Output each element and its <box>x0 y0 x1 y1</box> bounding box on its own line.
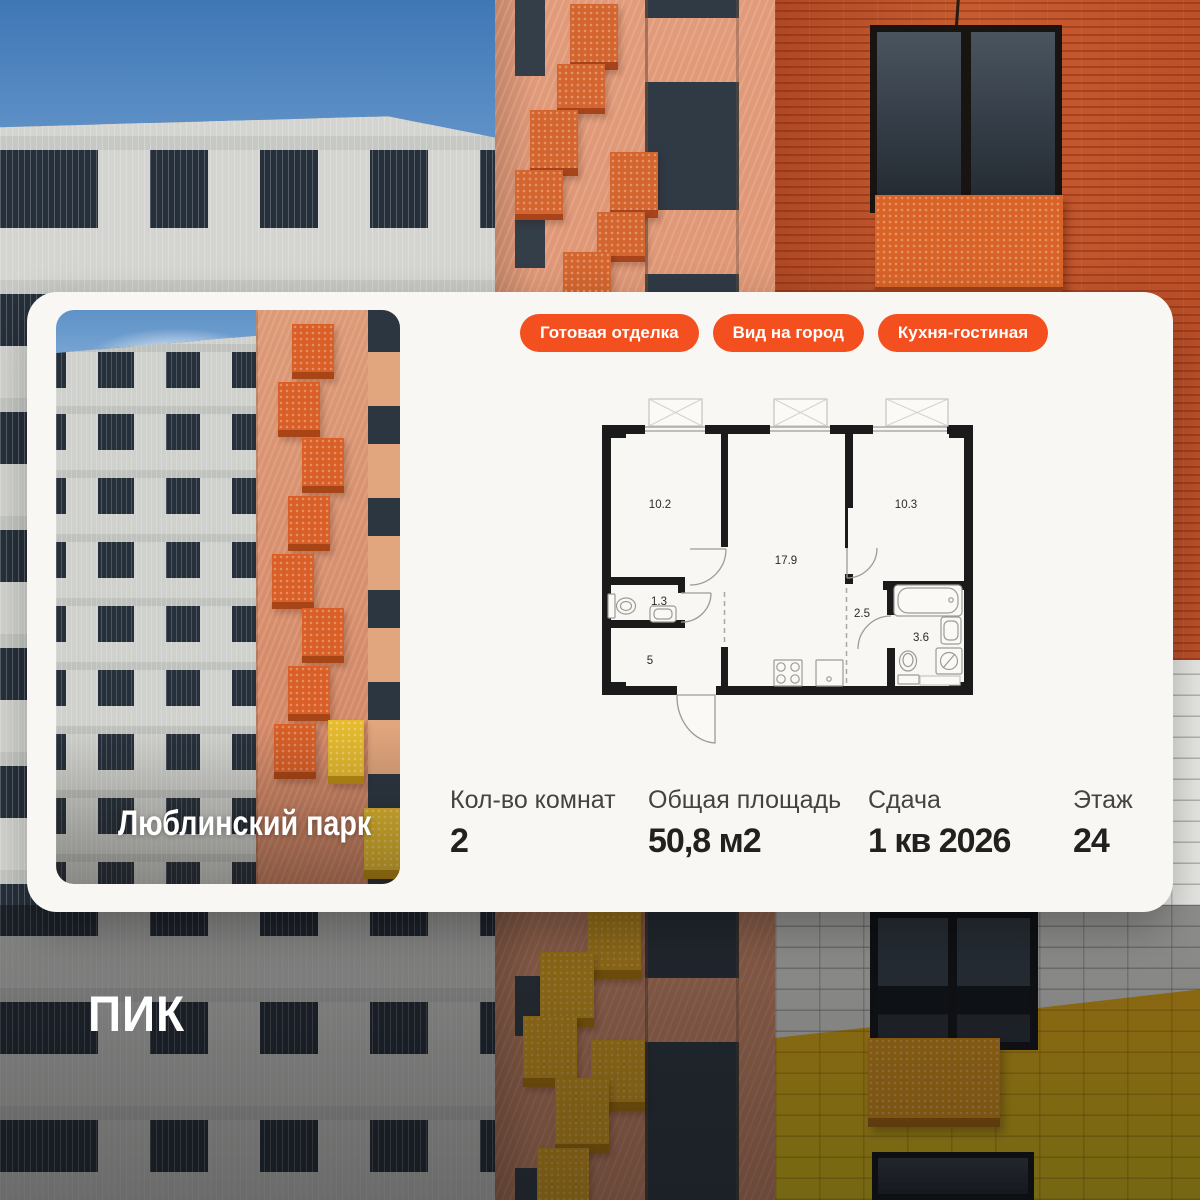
stat-area: Общая площадь 50,8 м2 <box>648 786 841 861</box>
project-name: Люблинский парк <box>118 804 371 844</box>
floorplan-doors <box>677 548 891 743</box>
ad-banner: ПИК Люблинский парк Готовая отделка Вид … <box>0 0 1200 1200</box>
stat-value: 50,8 м2 <box>648 822 841 861</box>
area-bath: 3.6 <box>913 632 929 644</box>
stat-rooms: Кол-во комнат 2 <box>450 786 616 861</box>
badge-kitchen: Кухня-гостиная <box>878 314 1048 352</box>
listing-card[interactable]: Люблинский парк Готовая отделка Вид на г… <box>27 292 1173 912</box>
area-corridor: 2.5 <box>854 608 870 620</box>
badge-view: Вид на город <box>713 314 864 352</box>
stat-value: 1 кв 2026 <box>868 822 1010 861</box>
stat-completion: Сдача 1 кв 2026 <box>868 786 1010 861</box>
stat-value: 2 <box>450 822 616 861</box>
balcony-box <box>288 666 330 721</box>
balcony-box <box>875 195 1063 297</box>
balcony-box <box>278 382 320 437</box>
background-dim-overlay <box>0 905 1200 1200</box>
balcony-box <box>610 152 658 218</box>
area-room1: 10.2 <box>649 499 671 511</box>
floorplan: 10.2 17.9 10.3 1.3 5 2.5 3.6 <box>560 390 1000 760</box>
stat-value: 24 <box>1073 822 1133 861</box>
balcony-box <box>530 110 578 176</box>
area-hall: 5 <box>647 655 653 667</box>
balcony-box <box>302 608 344 663</box>
balcony-box <box>288 496 330 551</box>
balcony-box <box>570 4 618 70</box>
window <box>870 25 1062 213</box>
badge-finish: Готовая отделка <box>520 314 699 352</box>
balcony-box <box>272 554 314 609</box>
badge-row: Готовая отделка Вид на город Кухня-гости… <box>520 314 1048 352</box>
stat-label: Сдача <box>868 786 1010 815</box>
floorplan-windows <box>645 399 948 435</box>
stat-label: Этаж <box>1073 786 1133 815</box>
area-room2: 10.3 <box>895 499 917 511</box>
balcony-box <box>292 324 334 379</box>
balcony-box <box>557 64 605 114</box>
stat-label: Общая площадь <box>648 786 841 815</box>
stat-label: Кол-во комнат <box>450 786 616 815</box>
listing-photo: Люблинский парк <box>56 310 400 884</box>
pik-logo: ПИК <box>88 985 185 1043</box>
area-living: 17.9 <box>775 555 797 567</box>
balcony-box <box>515 170 563 220</box>
area-wc: 1.3 <box>651 596 667 608</box>
balcony-box <box>302 438 344 493</box>
stat-floor: Этаж 24 <box>1073 786 1133 861</box>
